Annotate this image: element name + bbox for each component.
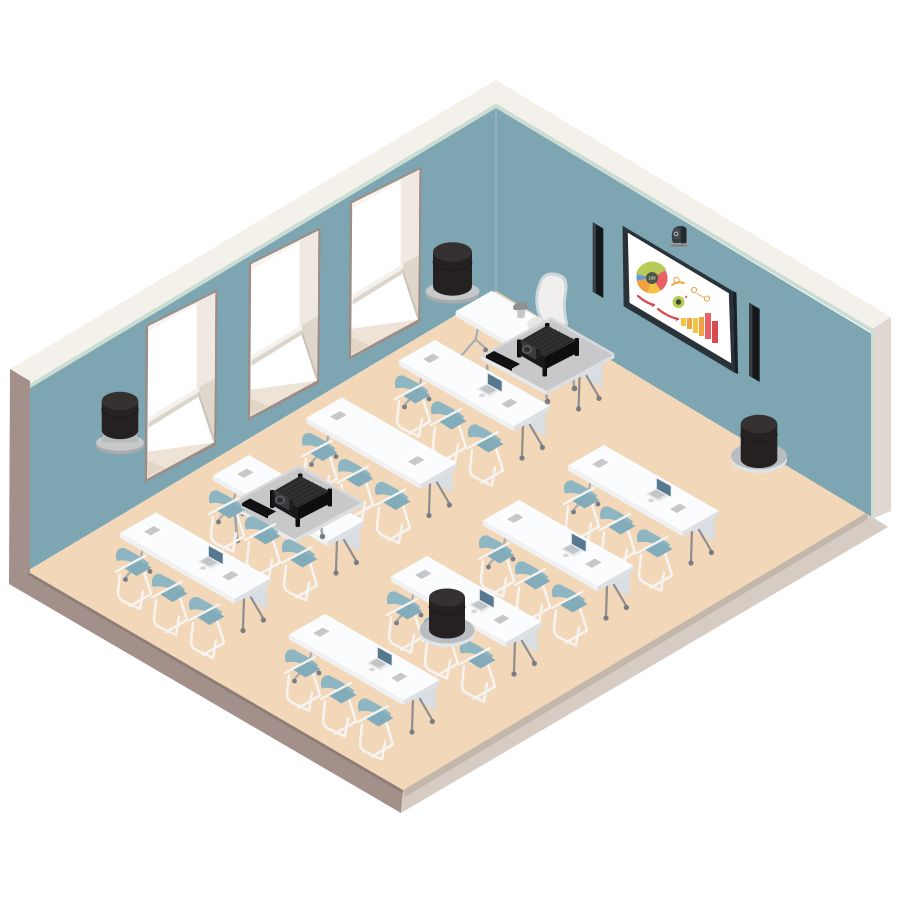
- svg-text:100: 100: [649, 276, 657, 281]
